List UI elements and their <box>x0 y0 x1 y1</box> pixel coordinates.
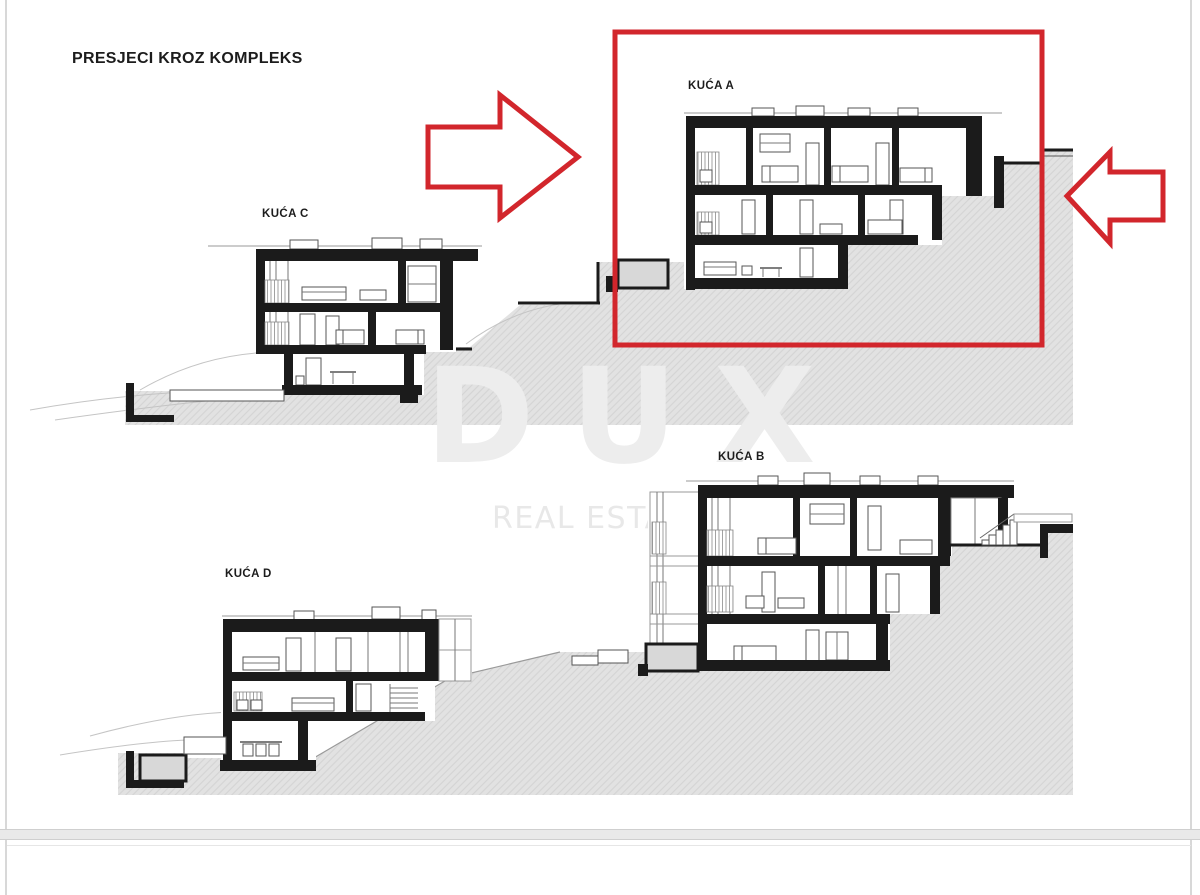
arrow-pointing-left-icon <box>1067 152 1163 243</box>
label-kuca-b: KUĆA B <box>718 451 765 463</box>
next-page-top-edge <box>7 845 1191 846</box>
label-kuca-c: KUĆA C <box>262 208 309 220</box>
page-right-border <box>1190 0 1192 895</box>
watermark-dux-text: DUX <box>425 340 852 494</box>
page-title: PRESJECI KROZ KOMPLEKS <box>72 50 303 68</box>
page-divider <box>0 829 1200 840</box>
label-kuca-d: KUĆA D <box>225 568 272 580</box>
page-left-border <box>5 0 7 895</box>
label-kuca-a: KUĆA A <box>688 80 734 92</box>
drawing-page: DUX REAL ESTATE <box>0 0 1200 895</box>
arrow-pointing-right-icon <box>428 95 578 218</box>
sections-drawing: DUX REAL ESTATE <box>0 0 1200 895</box>
